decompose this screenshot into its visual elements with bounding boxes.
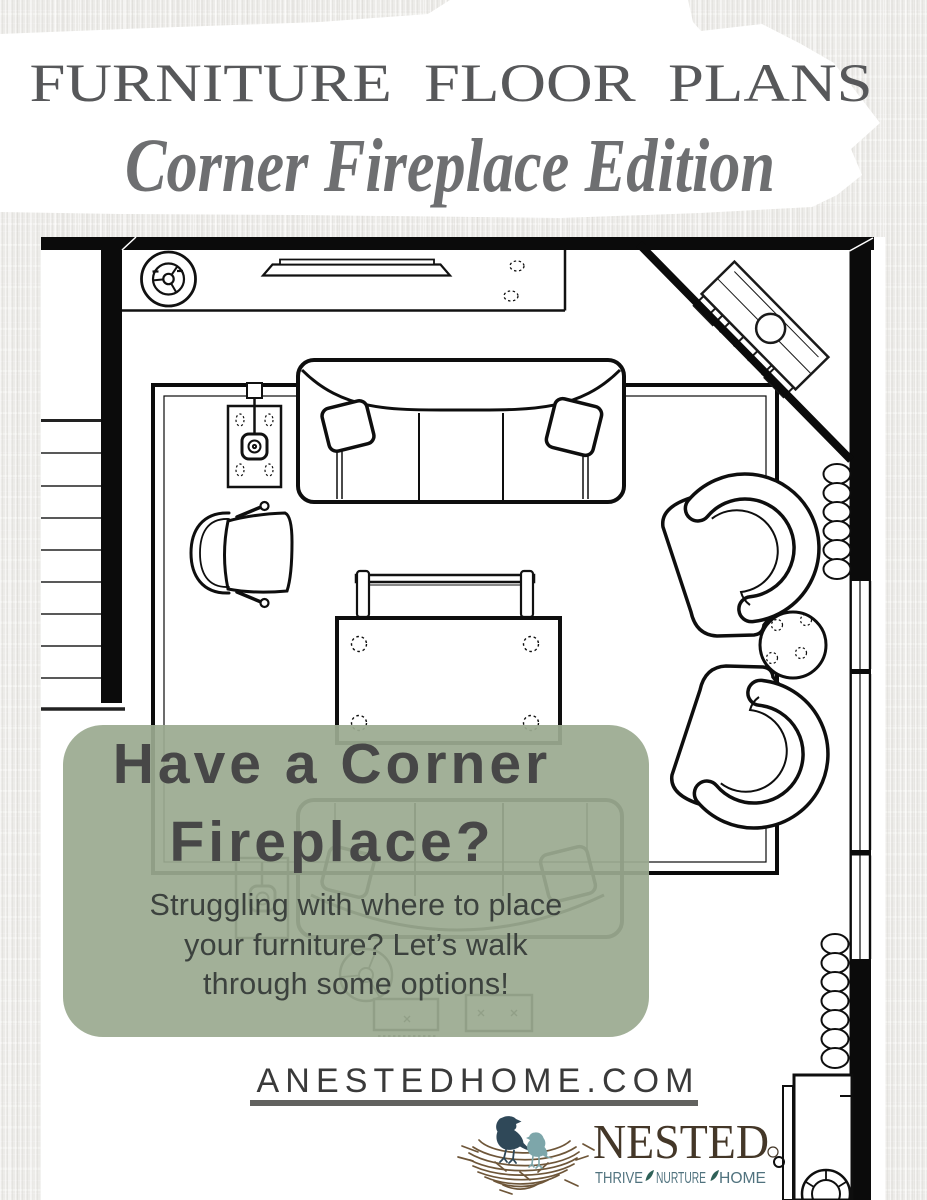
svg-text:ANESTEDHOME.COM: ANESTEDHOME.COM bbox=[257, 1062, 694, 1100]
svg-text:HOME: HOME bbox=[719, 1170, 766, 1187]
svg-text:THRIVE: THRIVE bbox=[595, 1170, 643, 1187]
svg-text:NURTURE: NURTURE bbox=[656, 1170, 706, 1187]
svg-text:NESTED: NESTED bbox=[593, 1114, 769, 1169]
